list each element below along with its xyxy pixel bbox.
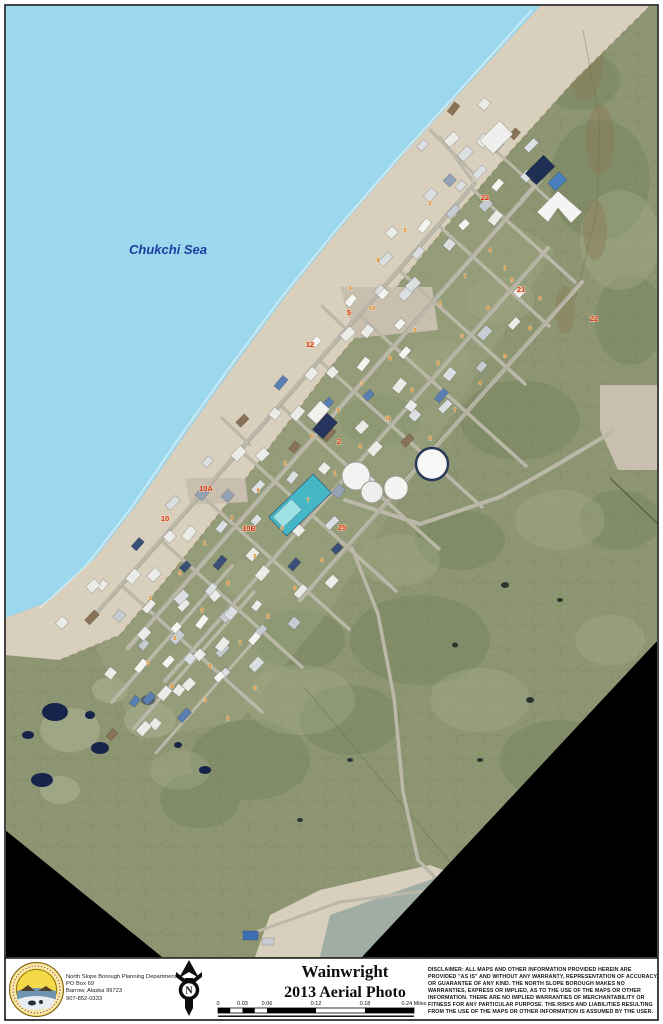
- lot-number: 1: [503, 266, 506, 272]
- lot-number: 2: [200, 608, 203, 614]
- block-label: 22: [590, 314, 598, 323]
- map-sheet: { "map": { "sea_label": "Chukchi Sea", "…: [0, 0, 663, 1024]
- lot-number: 1: [333, 471, 336, 477]
- lot-number: 3: [360, 381, 363, 387]
- lot-number: 8: [226, 581, 229, 587]
- lot-number: 5: [178, 571, 181, 577]
- lot-number: 14: [369, 306, 376, 312]
- block-label: 10B: [242, 524, 256, 533]
- lot-number: 5: [413, 328, 416, 334]
- lot-number: 5: [146, 661, 149, 667]
- lot-number: 2: [438, 301, 441, 307]
- lot-number: 11: [385, 416, 391, 422]
- lot-number: 8: [170, 684, 173, 690]
- svg-text:N: N: [185, 986, 193, 997]
- block-label: 10: [161, 514, 169, 523]
- lot-number: 2: [428, 436, 431, 442]
- aerial-map: Chukchi Sea 10A10B10222225122521 3517426…: [0, 0, 663, 1024]
- lot-number: 6: [320, 558, 323, 564]
- lot-number: 7: [453, 408, 456, 414]
- lot-number: 1: [226, 716, 229, 722]
- svg-text:0.03: 0.03: [237, 1001, 248, 1007]
- boat-shed: [243, 931, 258, 940]
- lot-number: 8: [486, 306, 489, 312]
- lot-number: 6: [173, 636, 176, 642]
- svg-text:0.06: 0.06: [262, 1001, 273, 1007]
- lot-number: 9: [293, 586, 296, 592]
- lot-number: 7: [306, 498, 309, 504]
- block-label: 21: [517, 285, 525, 294]
- lot-number: 7: [230, 516, 233, 522]
- north-arrow-icon: N: [168, 958, 210, 1020]
- lot-number: 6: [410, 388, 413, 394]
- lot-number: 2: [283, 461, 286, 467]
- lot-number: 5: [403, 228, 406, 234]
- scale-bar: 0 0.03 0.06 0.12 0.18 0.24 Miles: [213, 995, 463, 1021]
- lot-number: 3: [348, 286, 351, 292]
- lot-number: 2: [428, 201, 431, 207]
- lot-number: 5: [253, 554, 256, 560]
- borough-seal: [8, 961, 65, 1018]
- lot-number: 3: [280, 526, 283, 532]
- svg-text:0.12: 0.12: [311, 1001, 322, 1007]
- disclaimer-text: DISCLAIMER: ALL MAPS AND OTHER INFORMATI…: [428, 967, 659, 1016]
- lot-number: 6: [253, 686, 256, 692]
- block-label: 22: [481, 193, 489, 202]
- lot-number: 7: [463, 274, 466, 280]
- lot-number: 3: [203, 698, 206, 704]
- map-title: Wainwright: [240, 962, 450, 982]
- lot-number: 5: [510, 278, 513, 284]
- lot-number: 8: [388, 356, 391, 362]
- block-label: 10A: [199, 484, 213, 493]
- lot-number: 3: [460, 334, 463, 340]
- lot-number: 6: [310, 434, 313, 440]
- lot-number: 2: [266, 614, 269, 620]
- block-label: 12: [306, 340, 314, 349]
- block-label: 5: [347, 308, 351, 317]
- lot-number: 6: [528, 326, 531, 332]
- lot-number: 9: [436, 361, 439, 367]
- water-tank: [416, 448, 448, 480]
- block-label: 25: [338, 523, 346, 532]
- lot-number: 7: [238, 641, 241, 647]
- lot-number: 8: [376, 258, 379, 264]
- svg-text:0.18: 0.18: [360, 1001, 371, 1007]
- lot-number: 9: [336, 408, 339, 414]
- block-label: 2: [337, 437, 341, 446]
- sea-label: Chukchi Sea: [129, 242, 207, 257]
- svg-text:0: 0: [216, 1001, 219, 1007]
- lot-number: 1: [203, 541, 206, 547]
- lot-number: 3: [148, 596, 151, 602]
- scale-end-label: 0.24 Miles: [401, 1001, 426, 1007]
- lot-number: 9: [503, 354, 506, 360]
